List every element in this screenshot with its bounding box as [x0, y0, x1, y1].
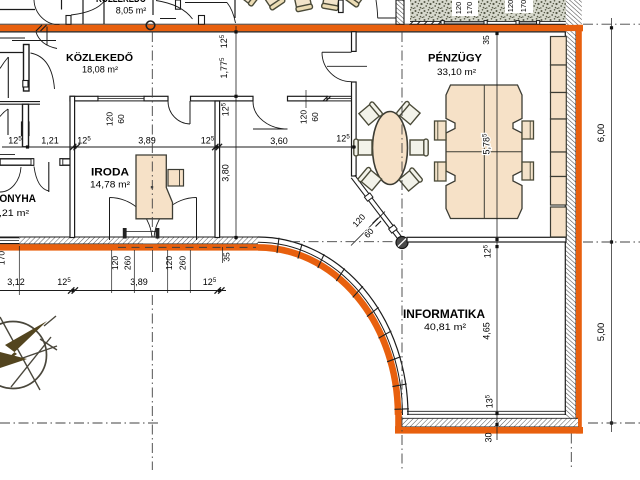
svg-text:260: 260 — [123, 256, 133, 270]
svg-text:120: 120 — [506, 0, 515, 12]
svg-text:120: 120 — [299, 110, 309, 124]
svg-text:3,12: 3,12 — [7, 277, 25, 287]
svg-text:6,00: 6,00 — [596, 124, 607, 143]
svg-text:170: 170 — [465, 2, 474, 15]
svg-text:35: 35 — [222, 252, 232, 262]
svg-text:3,60: 3,60 — [270, 136, 288, 146]
svg-text:120: 120 — [454, 2, 463, 15]
svg-text:60: 60 — [116, 114, 126, 124]
svg-text:120: 120 — [164, 256, 174, 270]
svg-text:120: 120 — [110, 256, 120, 270]
svg-text:30: 30 — [484, 432, 494, 442]
svg-text:6,21 m²: 6,21 m² — [0, 208, 29, 218]
svg-text:3,89: 3,89 — [138, 136, 156, 146]
svg-text:170: 170 — [0, 251, 7, 265]
svg-text:40,81 m²: 40,81 m² — [424, 322, 466, 333]
svg-text:KÖZLEKEDŐ: KÖZLEKEDŐ — [66, 51, 133, 64]
svg-text:33,10 m²: 33,10 m² — [437, 67, 476, 77]
svg-text:8,05 m²: 8,05 m² — [116, 6, 147, 16]
svg-text:IRODA: IRODA — [91, 167, 129, 179]
svg-text:1,21: 1,21 — [41, 136, 59, 146]
svg-text:35: 35 — [481, 35, 491, 45]
svg-text:3,80: 3,80 — [221, 164, 231, 182]
svg-text:60: 60 — [310, 112, 320, 122]
svg-text:PÉNZÜGY: PÉNZÜGY — [428, 52, 483, 65]
svg-text:14,78 m²: 14,78 m² — [90, 180, 130, 190]
svg-text:4,65: 4,65 — [482, 322, 492, 340]
svg-text:120: 120 — [104, 112, 114, 126]
svg-text:170: 170 — [519, 0, 528, 12]
svg-text:18,08 m²: 18,08 m² — [82, 65, 118, 75]
svg-text:260: 260 — [178, 256, 188, 270]
svg-text:5,00: 5,00 — [596, 323, 607, 342]
svg-text:INFORMATIKA: INFORMATIKA — [403, 309, 485, 321]
svg-text:KONYHA: KONYHA — [0, 193, 36, 205]
svg-text:3,89: 3,89 — [130, 277, 148, 287]
